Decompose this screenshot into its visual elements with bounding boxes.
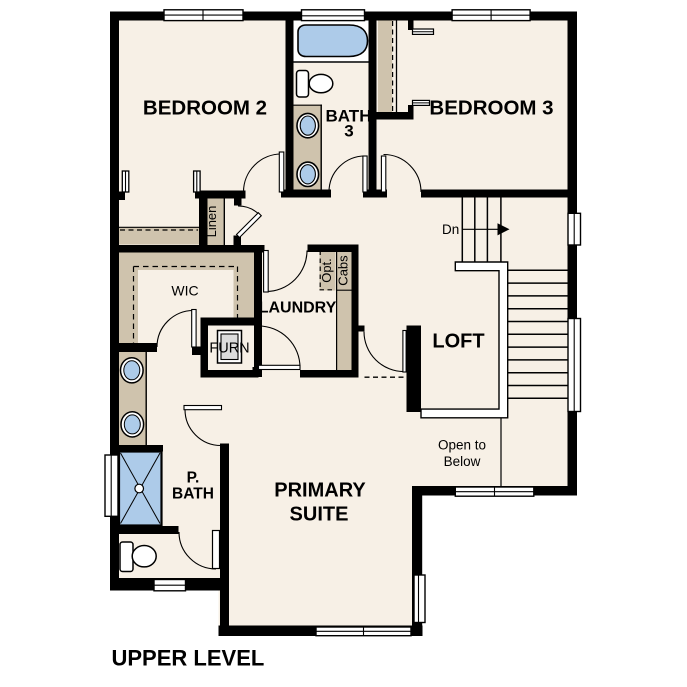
- svg-text:3: 3: [344, 122, 353, 141]
- svg-text:FURN: FURN: [209, 341, 249, 357]
- svg-text:Open to: Open to: [438, 438, 486, 453]
- svg-text:UPPER LEVEL: UPPER LEVEL: [112, 646, 265, 671]
- svg-text:Cabs: Cabs: [335, 255, 350, 286]
- svg-text:Opt.: Opt.: [319, 258, 334, 283]
- svg-text:Dn: Dn: [442, 222, 459, 237]
- svg-text:Linen: Linen: [204, 206, 219, 238]
- svg-text:LOFT: LOFT: [432, 331, 484, 353]
- svg-text:BEDROOM 2: BEDROOM 2: [143, 97, 267, 120]
- svg-text:WIC: WIC: [171, 283, 198, 299]
- svg-text:BEDROOM 3: BEDROOM 3: [429, 97, 553, 120]
- svg-text:Below: Below: [444, 454, 481, 469]
- svg-text:LAUNDRY: LAUNDRY: [259, 300, 337, 317]
- svg-text:P.: P.: [187, 470, 200, 487]
- svg-text:BATH: BATH: [172, 486, 214, 503]
- svg-text:PRIMARY: PRIMARY: [274, 480, 366, 502]
- svg-text:SUITE: SUITE: [290, 504, 349, 526]
